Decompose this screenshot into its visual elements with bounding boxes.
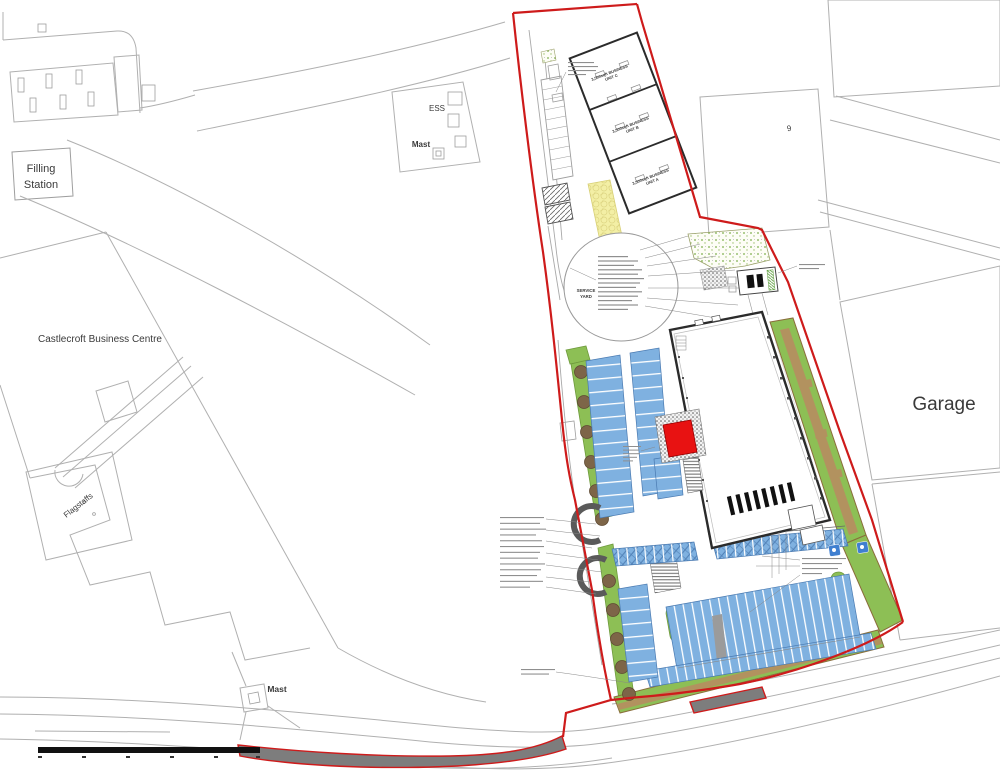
label-filling-station: Station [24, 179, 58, 191]
notes-south-block [521, 669, 555, 675]
garage-outline [840, 266, 1000, 480]
store-enclosure [545, 202, 573, 224]
label-flagstaffs: Flagstaffs [62, 491, 95, 519]
label-mast-south: Mast [267, 684, 287, 694]
scale-bar [38, 747, 260, 758]
label-filling-station: Filling [27, 163, 56, 175]
substation-structure [728, 267, 778, 318]
context-ess-mast-compound [392, 82, 480, 172]
context-roads [0, 22, 1000, 769]
accessible-bay-icon [856, 541, 868, 553]
label-garage: Garage [912, 394, 975, 415]
context-castlecroft-buildings [0, 357, 310, 660]
notes-substation-block [799, 264, 825, 269]
south-car-park [612, 526, 876, 687]
feature-red-fill [663, 420, 697, 457]
notes-west-block [500, 517, 546, 588]
gravel-planting-area [688, 228, 770, 270]
architectural-site-plan: Filling Station Castlecroft Business Cen… [0, 0, 1000, 775]
label-mast-north: Mast [412, 140, 431, 149]
building-9-outline [700, 89, 829, 236]
label-business-centre: Castlecroft Business Centre [38, 334, 162, 345]
label-ess: ESS [429, 104, 445, 113]
plan-canvas: Filling Station Castlecroft Business Cen… [0, 0, 1000, 775]
yellow-surface-area [588, 180, 622, 241]
store-enclosure [542, 183, 570, 205]
grey-footway-strips [238, 687, 766, 767]
label-building-9: 9 [786, 124, 793, 134]
accessible-bay-icon [828, 544, 840, 556]
label-service-yard: SERVICE [577, 288, 596, 293]
label-service-yard: YARD [580, 294, 592, 299]
